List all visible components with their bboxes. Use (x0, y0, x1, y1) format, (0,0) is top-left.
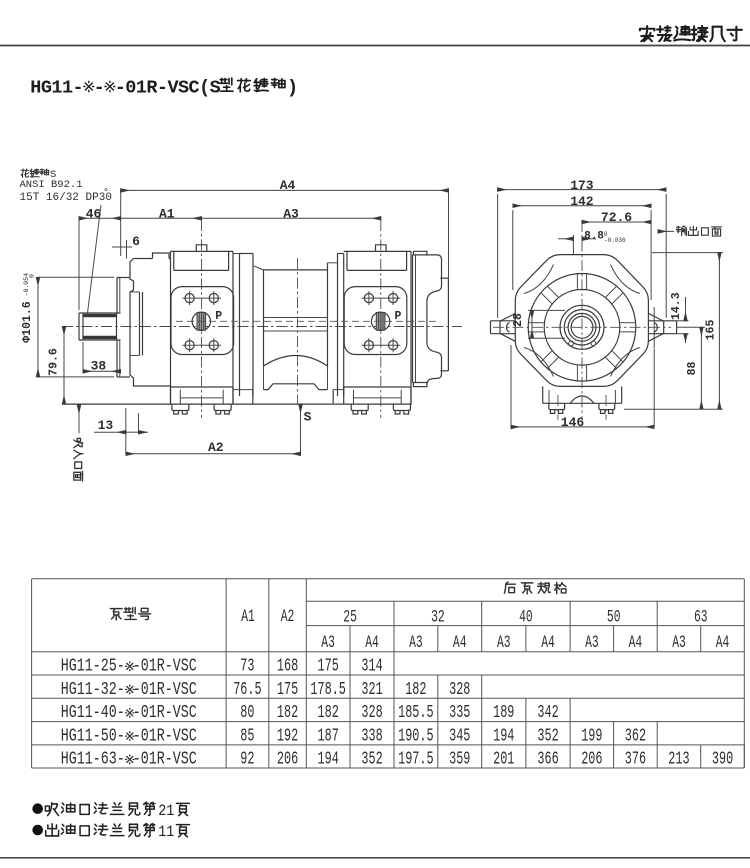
svg-text:-: - (94, 78, 105, 99)
svg-text:79.6: 79.6 (48, 348, 61, 376)
svg-text:46: 46 (86, 206, 102, 221)
svg-text:A4: A4 (280, 178, 296, 193)
svg-text:40: 40 (519, 608, 533, 627)
svg-text:A3: A3 (409, 634, 423, 653)
svg-text:A4: A4 (629, 634, 643, 653)
svg-text:168: 168 (277, 657, 298, 677)
svg-text:80: 80 (240, 703, 254, 723)
svg-text:146: 146 (561, 415, 585, 430)
svg-text:192: 192 (277, 726, 298, 746)
svg-text:194: 194 (318, 750, 339, 770)
svg-text:S: S (304, 410, 312, 425)
svg-text:206: 206 (581, 750, 602, 770)
svg-text:A1: A1 (241, 608, 255, 627)
svg-text:187: 187 (318, 726, 339, 746)
svg-text:314: 314 (361, 657, 382, 677)
svg-text:A2: A2 (281, 608, 295, 627)
svg-text:362: 362 (625, 726, 646, 746)
svg-text:73: 73 (240, 657, 254, 677)
svg-text:63: 63 (694, 608, 708, 627)
svg-text:A3: A3 (321, 634, 335, 653)
svg-text:A4: A4 (453, 634, 467, 653)
svg-text:13: 13 (98, 418, 114, 433)
svg-text:142: 142 (570, 194, 594, 209)
svg-text:189: 189 (493, 703, 514, 723)
svg-text:Φ101.6: Φ101.6 (21, 301, 34, 343)
svg-text:HG11-63-: HG11-63- (61, 749, 125, 770)
svg-text:366: 366 (537, 750, 558, 770)
svg-text:A3: A3 (283, 206, 299, 221)
svg-text:A3: A3 (497, 634, 511, 653)
svg-text:213: 213 (668, 750, 689, 770)
svg-text:165: 165 (705, 320, 718, 341)
svg-text:-01R-VSC: -01R-VSC (133, 702, 197, 723)
svg-text:321: 321 (361, 680, 382, 700)
svg-text:-01R-VSC: -01R-VSC (133, 725, 197, 746)
svg-text:359: 359 (449, 750, 470, 770)
svg-text:A1: A1 (159, 206, 175, 221)
svg-text:A3: A3 (585, 634, 599, 653)
svg-text:328: 328 (361, 703, 382, 723)
svg-text:A3: A3 (672, 634, 686, 653)
svg-text:21: 21 (158, 802, 174, 820)
svg-text:ANSI B92.1: ANSI B92.1 (20, 179, 83, 191)
svg-text:338: 338 (361, 726, 382, 746)
svg-text:352: 352 (361, 750, 382, 770)
svg-text:A2: A2 (208, 440, 224, 455)
svg-text:197.5: 197.5 (398, 750, 434, 770)
svg-text:): ) (287, 78, 298, 99)
svg-text:175: 175 (318, 657, 339, 677)
svg-text:6: 6 (132, 234, 140, 249)
svg-text:A4: A4 (541, 634, 555, 653)
svg-text:-0.054: -0.054 (23, 273, 30, 297)
svg-text:335: 335 (449, 703, 470, 723)
svg-text:88: 88 (686, 362, 699, 376)
svg-text:8.8: 8.8 (584, 231, 604, 243)
svg-text:328: 328 (449, 680, 470, 700)
svg-text:190.5: 190.5 (398, 726, 434, 746)
svg-text:A4: A4 (365, 634, 379, 653)
svg-text:HG11-32-: HG11-32- (61, 679, 125, 700)
svg-text:28: 28 (512, 313, 525, 327)
svg-text:-0.036: -0.036 (604, 237, 626, 244)
svg-text:38: 38 (91, 359, 107, 374)
svg-text:HG11-40-: HG11-40- (61, 702, 125, 723)
svg-text:345: 345 (449, 726, 470, 746)
svg-text:HG11-50-: HG11-50- (61, 725, 125, 746)
svg-text:72.6: 72.6 (601, 210, 632, 225)
svg-text:376: 376 (625, 750, 646, 770)
svg-text:342: 342 (537, 703, 558, 723)
svg-text:-01R-VSC: -01R-VSC (133, 679, 197, 700)
svg-text:HG11-25-: HG11-25- (61, 656, 125, 677)
svg-text:390: 390 (712, 750, 733, 770)
svg-text:76.5: 76.5 (233, 680, 261, 700)
svg-text:15T 16/32 DP30: 15T 16/32 DP30 (20, 192, 112, 204)
svg-text:-01R-VSC: -01R-VSC (133, 656, 197, 677)
svg-text:201: 201 (493, 750, 514, 770)
svg-text:199: 199 (581, 726, 602, 746)
svg-text:A4: A4 (716, 634, 730, 653)
svg-text:-01R-VSC(S: -01R-VSC(S (115, 78, 221, 99)
svg-text:352: 352 (537, 726, 558, 746)
svg-text:194: 194 (493, 726, 514, 746)
svg-text:32: 32 (431, 608, 445, 627)
svg-text:-01R-VSC: -01R-VSC (133, 749, 197, 770)
svg-text:14.3: 14.3 (670, 292, 683, 320)
svg-text:°: ° (103, 187, 109, 199)
svg-text:25: 25 (343, 608, 357, 627)
svg-text:182: 182 (318, 703, 339, 723)
svg-text:85: 85 (240, 726, 254, 746)
svg-text:173: 173 (570, 178, 594, 193)
svg-text:182: 182 (405, 680, 426, 700)
svg-text:206: 206 (277, 750, 298, 770)
svg-text:11: 11 (158, 823, 174, 841)
svg-text:185.5: 185.5 (398, 703, 434, 723)
svg-text:182: 182 (277, 703, 298, 723)
svg-text:175: 175 (277, 680, 298, 700)
svg-text:50: 50 (607, 608, 621, 627)
svg-text:HG11-: HG11- (30, 78, 83, 99)
svg-text:92: 92 (240, 750, 254, 770)
svg-text:178.5: 178.5 (310, 680, 346, 700)
